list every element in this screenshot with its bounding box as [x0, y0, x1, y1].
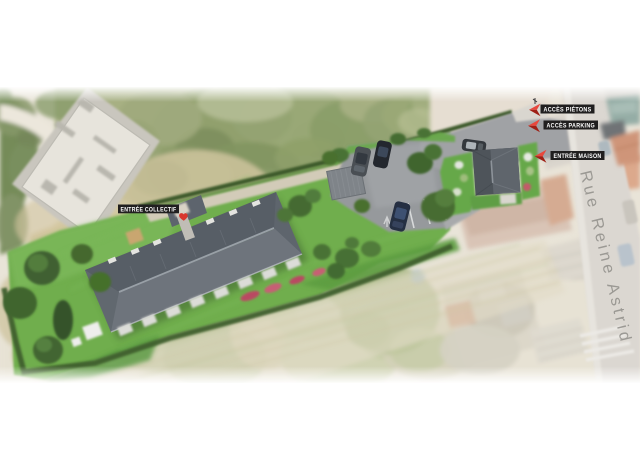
svg-text:ENTRÉE MAISON: ENTRÉE MAISON [554, 151, 602, 160]
svg-text:ENTRÉE COLLECTIF: ENTRÉE COLLECTIF [121, 205, 177, 214]
svg-text:ACCÈS PARKING: ACCÈS PARKING [547, 121, 596, 130]
svg-text:ACCÈS PIÉTONS: ACCÈS PIÉTONS [544, 105, 592, 114]
